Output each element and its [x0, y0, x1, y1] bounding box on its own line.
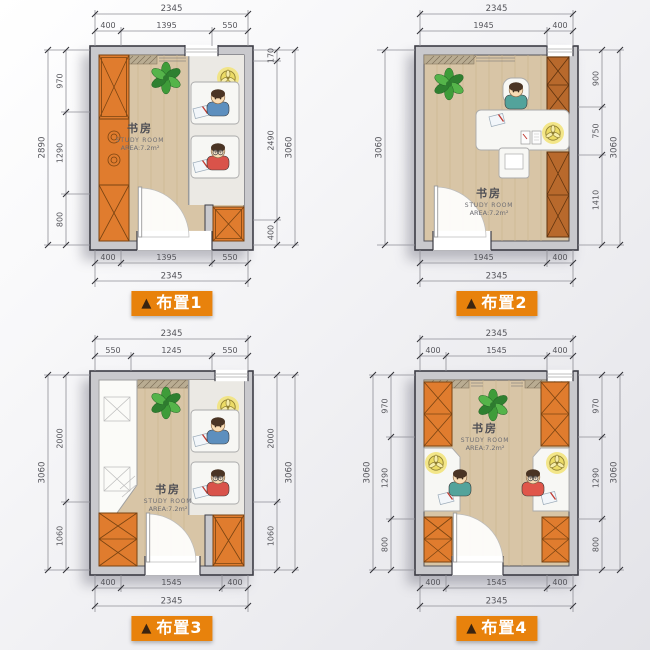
room-name-cn: 书房: [476, 186, 502, 200]
room-3: 书房 STUDY ROOM AREA:7.2m²: [90, 370, 253, 576]
dim-value: 1410: [592, 190, 601, 210]
room-area: AREA:7.2m²: [470, 209, 509, 217]
dim-value: 1945: [473, 253, 493, 262]
dim-value: 800: [56, 212, 65, 227]
wardrobe: [424, 382, 452, 446]
plan-4-quadrant: 书房 STUDY ROOM AREA:7.2m² 2345 400 1545 4…: [325, 325, 650, 650]
dim-value: 400: [227, 578, 242, 587]
dim-value: 750: [592, 123, 601, 138]
desk-unit: [191, 82, 239, 124]
dim-value: 400: [267, 225, 276, 240]
window: [547, 45, 573, 56]
room-name-cn: 书房: [472, 421, 498, 435]
dim-value: 400: [425, 578, 440, 587]
layout-label-4: ▲ 布置4: [456, 616, 537, 641]
dim-value: 550: [222, 346, 237, 355]
room-name-en: STUDY ROOM: [144, 498, 193, 505]
dim-value: 400: [552, 346, 567, 355]
dim-value: 2345: [161, 272, 183, 282]
plan-3-quadrant: 书房 STUDY ROOM AREA:7.2m² 2345 550 1245 5…: [0, 325, 325, 650]
plan-2-quadrant: 书房 STUDY ROOM AREA:7.2m² 2345 1945 400 1…: [325, 0, 650, 325]
cabinet: [99, 513, 137, 566]
dim-value: 3060: [285, 137, 295, 159]
dim-value: 400: [552, 578, 567, 587]
window: [185, 45, 218, 56]
dim-value: 3060: [375, 137, 385, 159]
layout-label-text: 布置3: [156, 620, 202, 636]
layout-label-text: 布置1: [156, 295, 202, 311]
wardrobe: [547, 57, 569, 113]
layout-label-3: ▲ 布置3: [131, 616, 212, 641]
desk-unit: [191, 410, 239, 452]
dim-value: 170: [267, 48, 276, 63]
bed: [99, 380, 137, 513]
floorplan-1: 书房 STUDY ROOM AREA:7.2m² 2345 400 1395 5…: [0, 0, 325, 290]
dim-value: 3060: [610, 462, 620, 484]
room-area: AREA:7.2m²: [121, 144, 160, 152]
dim-value: 550: [105, 346, 120, 355]
dim-value: 970: [592, 398, 601, 413]
dim-value: 2345: [486, 329, 508, 339]
dim-value: 2000: [267, 428, 276, 448]
dim-value: 1395: [156, 21, 176, 30]
desk-unit: [191, 462, 239, 504]
window: [547, 370, 573, 381]
dim-value: 3060: [610, 137, 620, 159]
room-area: AREA:7.2m²: [149, 505, 188, 513]
dim-value: 550: [222, 21, 237, 30]
dim-value: 1245: [161, 346, 181, 355]
lamp-icon: [546, 452, 568, 474]
room-2: 书房 STUDY ROOM AREA:7.2m²: [415, 45, 578, 251]
room-name-en: STUDY ROOM: [465, 202, 514, 209]
floorplan-sheet: 书房 STUDY ROOM AREA:7.2m² 2345 400 1395 5…: [0, 0, 650, 650]
dim-value: 1060: [56, 526, 65, 546]
window: [215, 370, 248, 381]
dim-value: 1545: [161, 578, 181, 587]
dim-value: 2345: [486, 272, 508, 282]
dim-value: 2345: [486, 597, 508, 607]
room-1: 书房 STUDY ROOM AREA:7.2m²: [90, 45, 253, 251]
dim-value: 400: [552, 253, 567, 262]
triangle-icon: ▲: [466, 622, 477, 635]
dim-value: 970: [56, 73, 65, 88]
lamp-icon: [425, 452, 447, 474]
room-name-cn: 书房: [127, 121, 153, 135]
cabinet: [213, 515, 244, 566]
triangle-icon: ▲: [141, 297, 152, 310]
dim-value: 1545: [486, 346, 506, 355]
dim-value: 3060: [285, 462, 295, 484]
cabinet: [424, 517, 452, 562]
room-area: AREA:7.2m²: [466, 444, 505, 452]
room-name-cn: 书房: [155, 482, 181, 496]
room-4: 书房 STUDY ROOM AREA:7.2m²: [415, 370, 578, 576]
dim-value: 1290: [592, 468, 601, 488]
dim-value: 2345: [486, 4, 508, 14]
dim-value: 400: [100, 253, 115, 262]
dim-value: 2345: [161, 4, 183, 14]
dim-value: 400: [100, 578, 115, 587]
floorplan-3: 书房 STUDY ROOM AREA:7.2m² 2345 550 1245 5…: [0, 325, 325, 615]
dim-value: 3060: [38, 462, 48, 484]
floorplan-4: 书房 STUDY ROOM AREA:7.2m² 2345 400 1545 4…: [325, 325, 650, 615]
dim-value: 2345: [161, 597, 183, 607]
room-name-en: STUDY ROOM: [116, 137, 165, 144]
lamp-icon: [542, 122, 564, 144]
triangle-icon: ▲: [466, 297, 477, 310]
dim-value: 2490: [267, 130, 276, 150]
dim-value: 1545: [486, 578, 506, 587]
layout-label-text: 布置2: [481, 295, 527, 311]
dim-value: 1290: [56, 143, 65, 163]
desk-unit: [191, 136, 239, 178]
room-name-en: STUDY ROOM: [461, 437, 510, 444]
cabinet: [542, 517, 569, 562]
dim-value: 800: [381, 537, 390, 552]
layout-label-2: ▲ 布置2: [456, 291, 537, 316]
wardrobe: [541, 382, 569, 446]
dim-value: 400: [552, 21, 567, 30]
dim-value: 800: [592, 537, 601, 552]
dim-value: 1945: [473, 21, 493, 30]
dim-value: 2000: [56, 428, 65, 448]
cabinet: [213, 207, 244, 241]
dim-value: 550: [222, 253, 237, 262]
triangle-icon: ▲: [141, 622, 152, 635]
layout-label-text: 布置4: [481, 620, 527, 636]
dim-value: 2345: [161, 329, 183, 339]
dim-value: 400: [100, 21, 115, 30]
dim-value: 1395: [156, 253, 176, 262]
dim-value: 2890: [38, 137, 48, 159]
floorplan-2: 书房 STUDY ROOM AREA:7.2m² 2345 1945 400 1…: [325, 0, 650, 290]
layout-label-1: ▲ 布置1: [131, 291, 212, 316]
dim-value: 900: [592, 71, 601, 86]
dim-value: 1290: [381, 468, 390, 488]
wall-stub: [205, 515, 213, 566]
wardrobe: [547, 152, 569, 237]
dim-value: 3060: [363, 462, 373, 484]
dim-value: 400: [425, 346, 440, 355]
plan-1-quadrant: 书房 STUDY ROOM AREA:7.2m² 2345 400 1395 5…: [0, 0, 325, 325]
dim-value: 970: [381, 398, 390, 413]
dim-value: 1060: [267, 526, 276, 546]
